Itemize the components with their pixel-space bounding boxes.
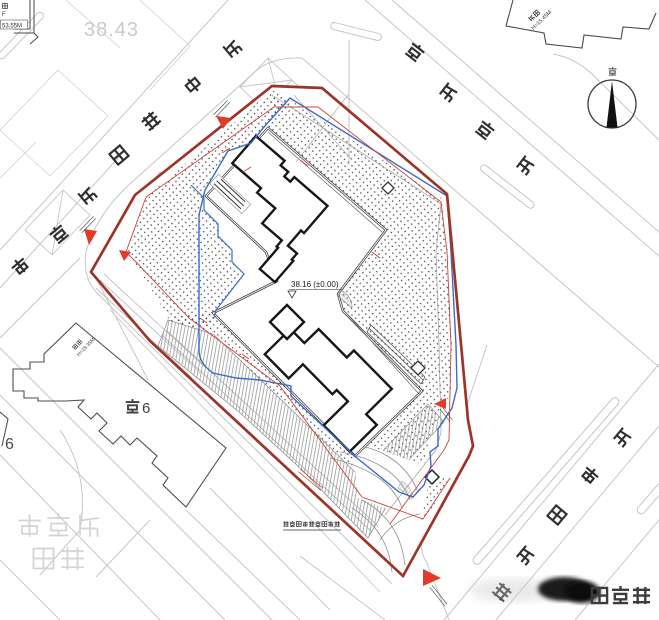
svg-text:38.43: 38.43 xyxy=(84,19,139,41)
svg-text:6: 6 xyxy=(142,400,150,417)
svg-text:38.16 (±0.00): 38.16 (±0.00) xyxy=(291,280,339,289)
svg-text:6: 6 xyxy=(5,436,14,453)
svg-text:F: F xyxy=(2,12,6,18)
svg-text:53.55M: 53.55M xyxy=(2,24,22,30)
